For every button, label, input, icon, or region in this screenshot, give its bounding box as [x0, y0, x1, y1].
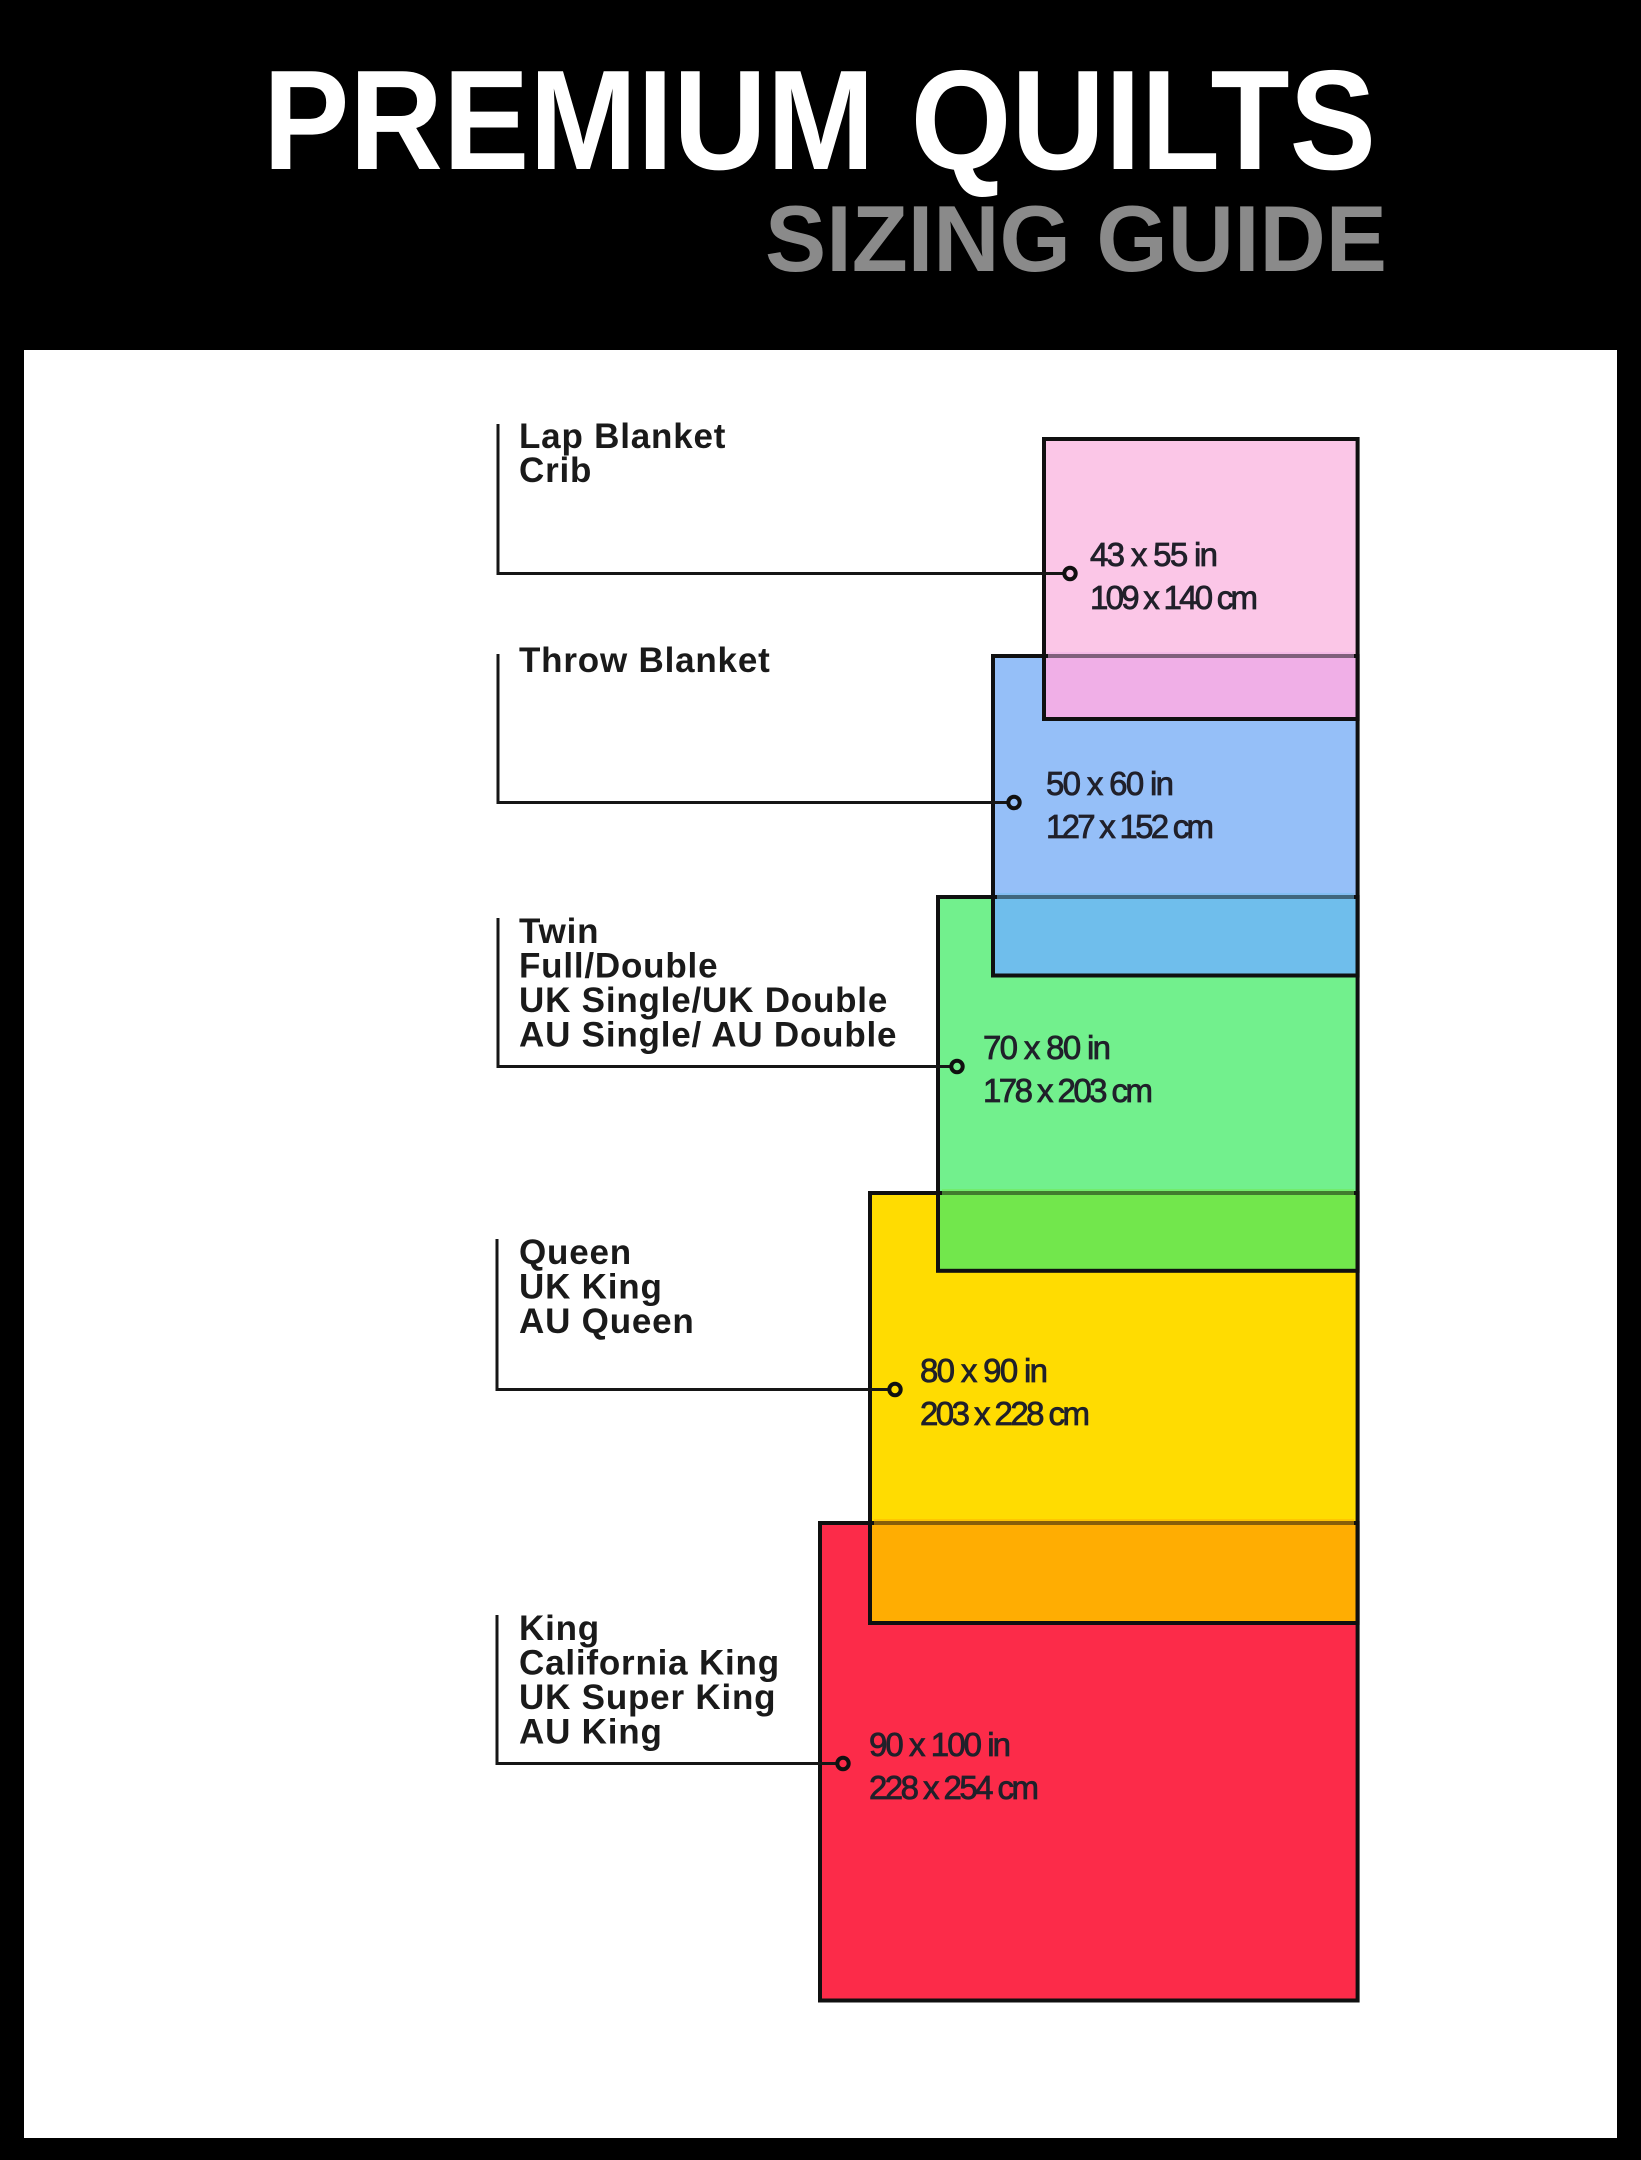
- svg-text:California King: California King: [519, 1644, 780, 1683]
- svg-text:228 x 254 cm: 228 x 254 cm: [869, 1769, 1039, 1806]
- svg-text:Queen: Queen: [519, 1233, 632, 1272]
- svg-text:AU Single/ AU Double: AU Single/ AU Double: [519, 1016, 897, 1055]
- svg-text:43 x 55 in: 43 x 55 in: [1090, 536, 1218, 573]
- svg-text:King: King: [519, 1609, 600, 1648]
- svg-text:127 x 152 cm: 127 x 152 cm: [1046, 808, 1214, 845]
- svg-text:AU King: AU King: [519, 1713, 663, 1752]
- svg-text:UK King: UK King: [519, 1268, 663, 1307]
- svg-text:PREMIUM QUILTS: PREMIUM QUILTS: [263, 41, 1376, 200]
- svg-text:203 x 228 cm: 203 x 228 cm: [920, 1395, 1090, 1432]
- svg-text:Crib: Crib: [519, 451, 592, 490]
- svg-text:UK Super King: UK Super King: [519, 1678, 776, 1717]
- svg-text:Throw Blanket: Throw Blanket: [519, 641, 771, 680]
- svg-text:UK Single/UK Double: UK Single/UK Double: [519, 981, 888, 1020]
- svg-text:109 x 140 cm: 109 x 140 cm: [1090, 579, 1258, 616]
- svg-text:50 x 60 in: 50 x 60 in: [1046, 765, 1174, 802]
- svg-text:80 x 90 in: 80 x 90 in: [920, 1352, 1048, 1389]
- svg-text:Twin: Twin: [519, 912, 599, 951]
- svg-text:178 x 203 cm: 178 x 203 cm: [983, 1072, 1153, 1109]
- svg-text:70 x 80 in: 70 x 80 in: [983, 1029, 1111, 1066]
- svg-text:90 x 100 in: 90 x 100 in: [869, 1726, 1011, 1763]
- svg-text:Full/Double: Full/Double: [519, 947, 718, 986]
- svg-text:SIZING GUIDE: SIZING GUIDE: [765, 186, 1387, 291]
- svg-text:AU Queen: AU Queen: [519, 1302, 695, 1341]
